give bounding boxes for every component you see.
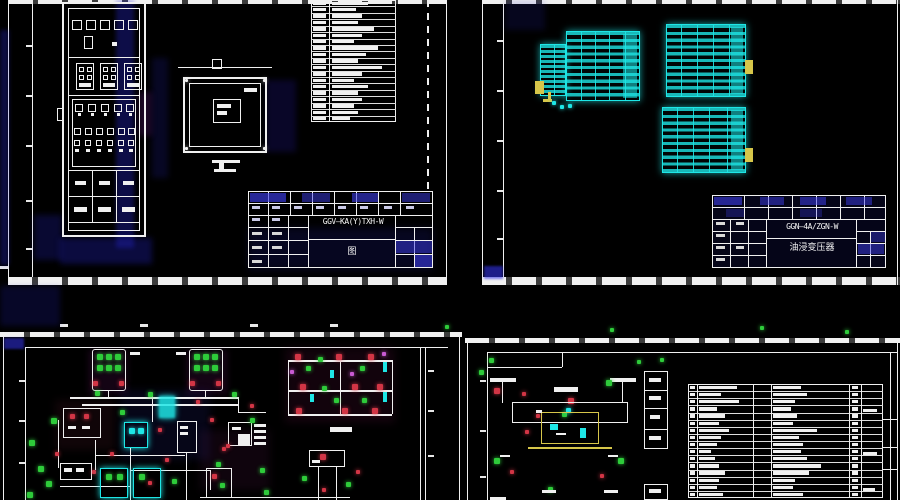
cad-drawing-canvas: GGV—KA(Y)TXH-W 图 GGN—4A/ZGN-W 油浸变压器: [0, 0, 900, 500]
gap-specks: [845, 330, 849, 334]
plot-artifact: [0, 286, 60, 326]
gap-specks: [445, 325, 449, 329]
gap-specks: [610, 328, 614, 332]
titleblock-caption-top-left: 图: [308, 244, 396, 257]
titleblock-model-top-left: GGV—KA(Y)TXH-W: [310, 217, 396, 226]
gap-specks: [760, 326, 764, 330]
titleblock-caption-top-right: 油浸变压器: [768, 240, 856, 253]
inter-sheet-artifacts: [0, 0, 900, 500]
titleblock-model-top-right: GGN—4A/ZGN-W: [768, 222, 856, 231]
